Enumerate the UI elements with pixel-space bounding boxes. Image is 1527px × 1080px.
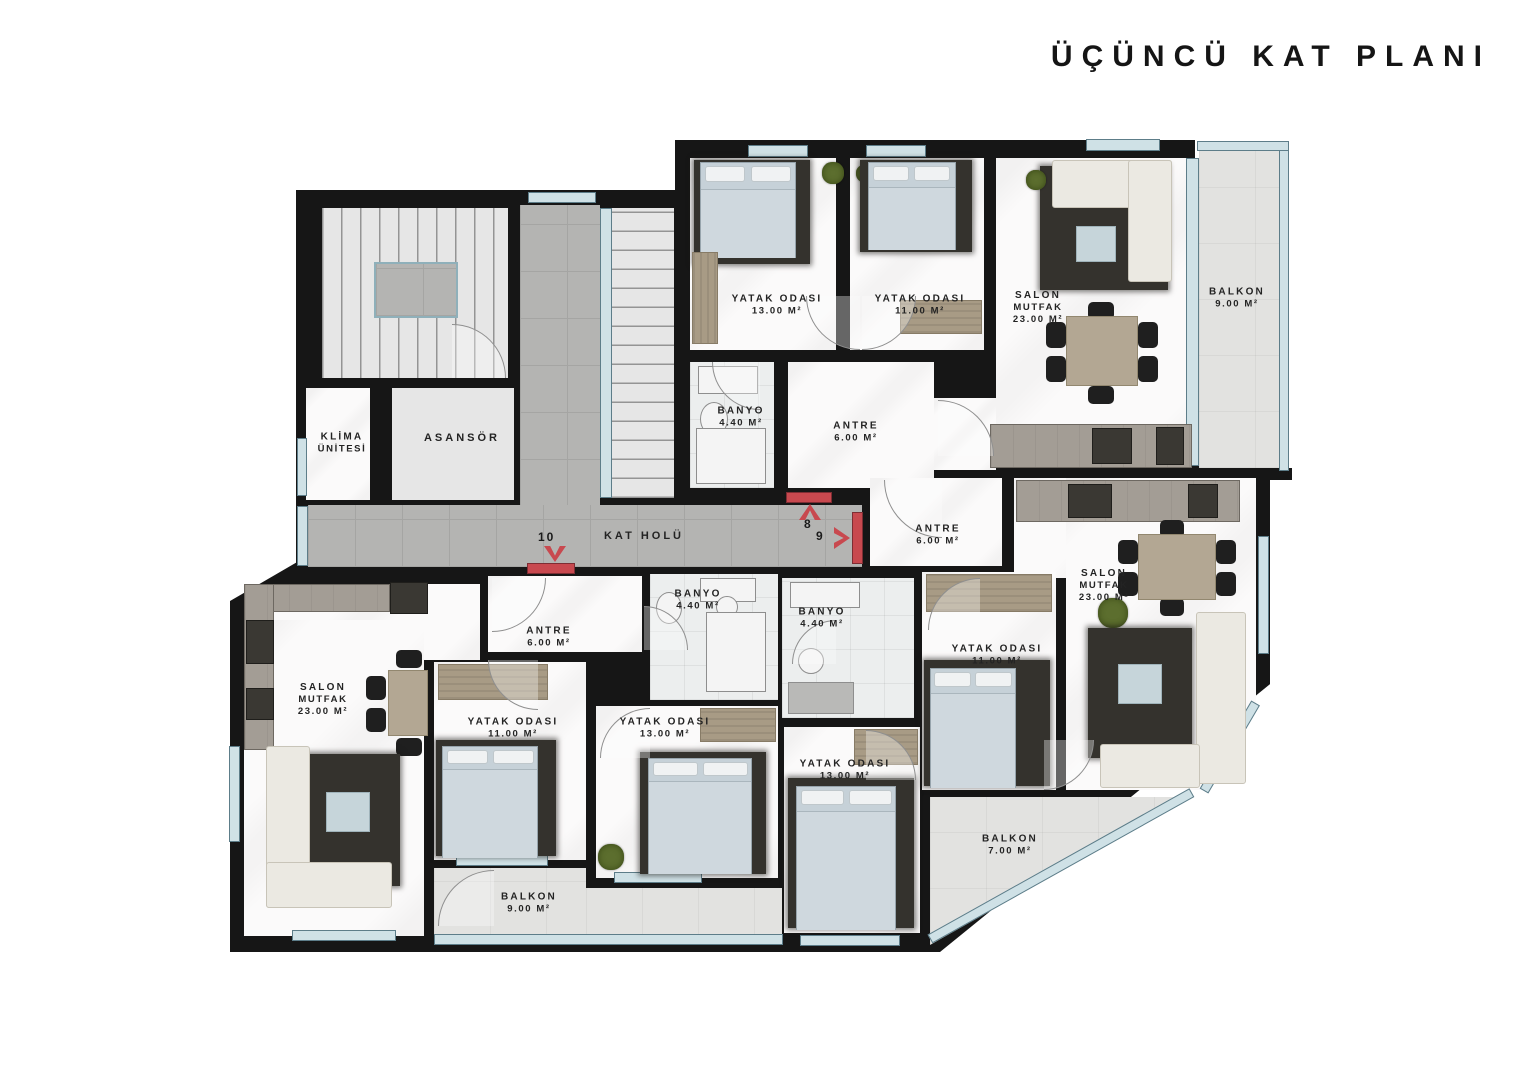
page-title: ÜÇÜNCÜ KAT PLANI [1051,40,1491,74]
bed [700,162,796,258]
dining-chair [1118,540,1138,564]
dining-table [1066,316,1138,386]
sofa [1100,744,1200,788]
cooktop [246,688,274,720]
window-corridor-left [297,506,308,566]
window-bedroom13-top [748,145,808,157]
room-label-livingroom-right: SALONMUTFAK23.00 M² [1079,567,1129,605]
core-corridor-strip [520,205,600,507]
bathroom-sink [790,582,860,608]
room-label-bathroom-bl: BANYO4.40 M² [674,587,721,612]
wardrobe [692,252,718,344]
room-label-livingroom-bl: SALONMUTFAK23.00 M² [298,681,348,719]
window-livingroom-bl-left [229,746,240,842]
kitchen-sink [246,620,274,664]
dining-chair [1088,386,1114,404]
balcony-railing-top [1197,141,1289,151]
coffee-table [1076,226,1116,262]
balcony-railing-right [1279,141,1289,471]
sofa [266,862,392,908]
room-label-klima: KLİMAÜNİTESİ [318,430,367,455]
room-label-hall-right: ANTRE6.00 M² [915,522,960,547]
kitchen-sink [1156,427,1184,465]
room-label-asansor: ASANSÖR [424,431,500,445]
bathtub [696,428,766,484]
stair-landing [374,262,458,318]
corridor-label: KAT HOLÜ [604,529,684,543]
room-label-bathroom-top: BANYO4.40 M² [717,404,764,429]
plant [1026,170,1046,190]
dining-chair [366,708,386,732]
room-label-balcony-top-right: BALKON9.00 M² [1209,285,1265,310]
room-label-balcony-bl: BALKON9.00 M² [501,890,557,915]
sofa [1196,612,1246,784]
bed [930,668,1016,788]
floor-plan-canvas: ÜÇÜNCÜ KAT PLANI [0,0,1527,1080]
room-label-hall-bl: ANTRE6.00 M² [526,624,571,649]
dining-chair [366,676,386,700]
dining-chair [1138,322,1158,348]
room-label-bedroom11-bl: YATAK ODASI11.00 M² [468,715,559,740]
coffee-table [326,792,370,832]
dining-chair [1216,540,1236,564]
window-livingroom-right [1258,536,1269,654]
unit-number-8: 8 [804,517,813,531]
coffee-table [1118,664,1162,704]
unit-number-10: 10 [538,530,555,544]
glass-door-to-balcony-top [1186,158,1199,466]
corridor-floor [308,505,862,567]
dining-table [388,670,428,736]
room-label-bedroom11-right: YATAK ODASI11.00 M² [952,642,1043,667]
window-livingroom-top [1086,139,1160,151]
dining-chair [396,650,422,668]
window-klima-left [297,438,307,496]
bed [868,162,956,250]
sofa [1128,160,1172,282]
dining-chair [1138,356,1158,382]
entrance-sill-unit10 [527,563,575,574]
bed [442,746,538,858]
room-label-bedroom13-bl: YATAK ODASI13.00 M² [620,715,711,740]
window-livingroom-bl-bottom [292,930,396,941]
window-bedroom11-top [866,145,926,157]
room-label-bedroom13-top: YATAK ODASI13.00 M² [732,292,823,317]
room-label-balcony-right: BALKON7.00 M² [982,832,1038,857]
room-label-bathroom-right: BANYO4.40 M² [798,605,845,630]
stair-glass-screen [600,208,612,498]
bathtub [706,612,766,692]
room-label-bedroom11-top: YATAK ODASI11.00 M² [875,292,966,317]
room-label-hall-top: ANTRE6.00 M² [833,419,878,444]
room-label-livingroom-top: SALONMUTFAK23.00 M² [1013,289,1063,327]
balcony-railing-bl [434,934,783,945]
entrance-sill-unit8 [786,492,832,503]
bed [648,758,752,874]
bed [796,786,896,930]
plant [822,162,844,184]
room-label-bedroom13-right: YATAK ODASI13.00 M² [800,757,891,782]
shower-tray [788,682,854,714]
window-bedroom13-right-bottom [800,935,900,946]
kitchen-cabinet [390,582,428,614]
stairwell-winder [612,208,674,498]
cooktop [1092,428,1132,464]
dining-chair [1046,356,1066,382]
dining-chair [1160,598,1184,616]
wardrobe [700,708,776,742]
plant [598,844,624,870]
dining-table [1138,534,1216,600]
window-core-top [528,192,596,203]
balcony-floor-bl-bottom [586,888,782,938]
kitchen-counter [244,584,274,750]
unit-number-9: 9 [816,529,825,543]
kitchen-sink [1188,484,1218,518]
cooktop [1068,484,1112,518]
dining-chair [1216,572,1236,596]
entrance-sill-unit9 [852,512,863,564]
